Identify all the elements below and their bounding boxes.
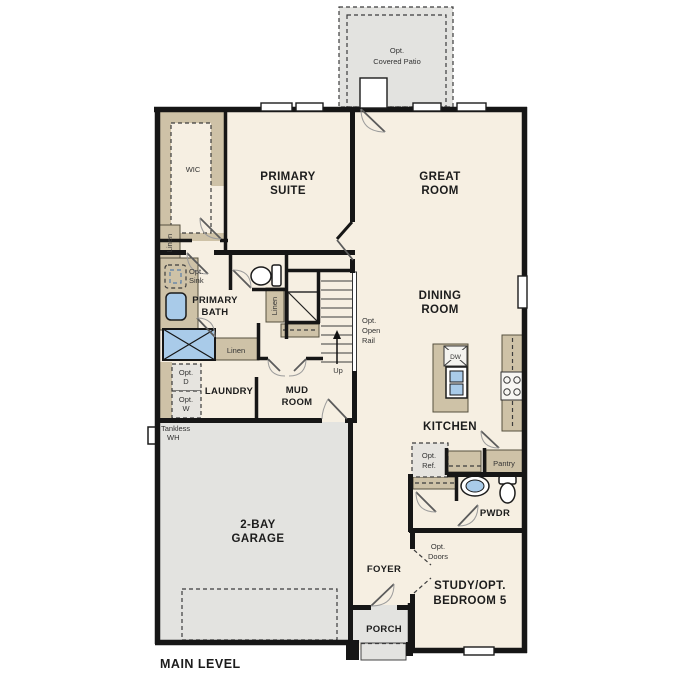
- mud-room-label: MUD: [286, 385, 309, 396]
- sink-icon-pwdr: [461, 476, 489, 496]
- svg-text:BEDROOM 5: BEDROOM 5: [433, 595, 506, 607]
- wic-label: WIC: [186, 165, 201, 174]
- sink-icon-kitchen: [446, 367, 467, 398]
- great-room-label: GREAT: [419, 171, 460, 183]
- window-great-2: [457, 103, 486, 111]
- dining-room-label: DINING: [419, 290, 462, 302]
- svg-text:D: D: [183, 377, 189, 386]
- window-dining: [518, 276, 527, 308]
- primary-bath-label: PRIMARY: [192, 295, 238, 306]
- sink-icon-primary: [166, 293, 186, 320]
- dishwasher-label: DW: [450, 354, 462, 361]
- linen-hall-label: Linen: [227, 346, 245, 355]
- primary-suite-label: PRIMARY: [260, 171, 315, 183]
- laundry-label: LAUNDRY: [205, 386, 254, 397]
- porch-steps: [361, 643, 406, 660]
- window-primary-1: [261, 103, 292, 111]
- svg-text:W: W: [182, 404, 190, 413]
- svg-text:WH: WH: [167, 433, 180, 442]
- svg-text:Doors: Doors: [428, 552, 448, 561]
- svg-text:Ref.: Ref.: [422, 461, 436, 470]
- opt-washer-label: Opt.: [179, 395, 193, 404]
- refrigerator-icon: [412, 443, 448, 477]
- tankless-wh-label: Tankless: [161, 424, 190, 433]
- study-label: STUDY/OPT.: [434, 580, 506, 592]
- svg-text:SUITE: SUITE: [270, 185, 306, 197]
- garage-label: 2-BAY: [240, 519, 275, 531]
- stair-rail: [353, 272, 357, 372]
- svg-text:BATH: BATH: [202, 307, 229, 318]
- garage-floor: [160, 422, 349, 641]
- kitchen-counter-bottom: [448, 451, 481, 472]
- laundry-counter: [160, 362, 172, 419]
- opt-dryer-label: Opt.: [179, 368, 193, 377]
- svg-text:GARAGE: GARAGE: [232, 533, 285, 545]
- svg-text:Sink: Sink: [189, 276, 204, 285]
- window-primary-2: [296, 103, 323, 111]
- opt-open-rail-label: Opt.: [362, 316, 376, 325]
- opt-sink-label: Opt.: [189, 267, 203, 276]
- svg-text:Open: Open: [362, 326, 380, 335]
- svg-text:ROOM: ROOM: [421, 304, 458, 316]
- porch-label: PORCH: [366, 624, 402, 635]
- window-study: [464, 647, 494, 655]
- svg-text:Rail: Rail: [362, 336, 375, 345]
- linen-stair-label: Linen: [270, 297, 279, 315]
- foyer-label: FOYER: [367, 564, 401, 575]
- plan-title: MAIN LEVEL: [160, 657, 241, 671]
- toilet-icon-pwdr: [499, 476, 516, 503]
- floor-plan-canvas: Opt. Covered Patio WIC PRIMARY SUITE GRE…: [0, 0, 687, 687]
- floor-plan: Opt. Covered Patio WIC PRIMARY SUITE GRE…: [0, 0, 687, 687]
- window-great-1: [413, 103, 441, 111]
- stairs-up-label: Up: [333, 366, 343, 375]
- toilet-icon-primary: [251, 265, 281, 286]
- pantry-label: Pantry: [493, 459, 515, 468]
- patio-label: Opt.: [390, 46, 404, 55]
- kitchen-label: KITCHEN: [423, 421, 477, 433]
- svg-text:Covered Patio: Covered Patio: [373, 57, 421, 66]
- linen-wic-label: Linen: [165, 234, 174, 252]
- svg-text:ROOM: ROOM: [282, 397, 313, 408]
- shower-icon: [163, 329, 215, 360]
- pwdr-label: PWDR: [480, 508, 510, 519]
- opt-doors-label: Opt.: [431, 542, 445, 551]
- opt-ref-label: Opt.: [422, 451, 436, 460]
- stove-icon: [501, 372, 523, 400]
- foyer-closet-shelf: [413, 477, 456, 489]
- svg-text:ROOM: ROOM: [421, 185, 458, 197]
